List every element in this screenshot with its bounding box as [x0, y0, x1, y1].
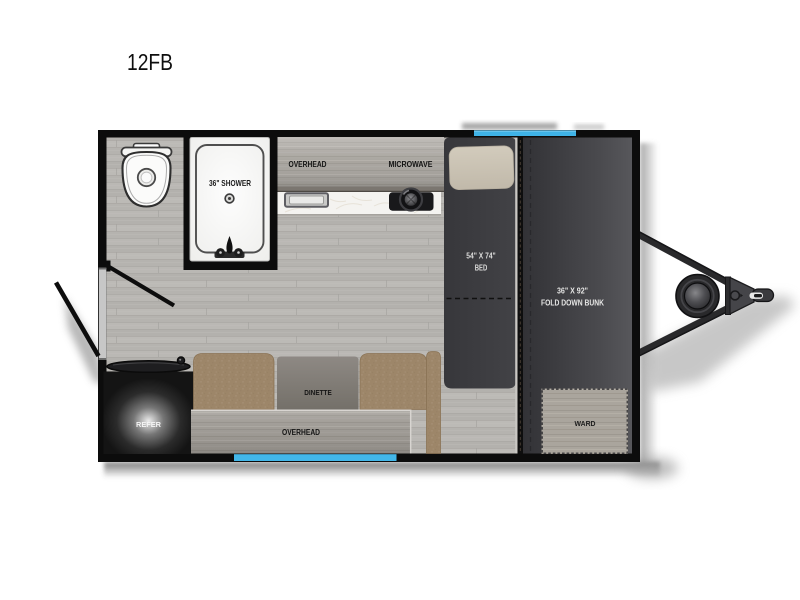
svg-text:BED: BED — [475, 264, 488, 273]
svg-text:OVERHEAD: OVERHEAD — [289, 160, 327, 169]
svg-text:36" X 92": 36" X 92" — [557, 287, 588, 296]
svg-text:MICROWAVE: MICROWAVE — [389, 160, 434, 169]
svg-text:36" SHOWER: 36" SHOWER — [209, 178, 251, 188]
svg-text:OVERHEAD: OVERHEAD — [282, 428, 320, 437]
svg-text:12FB: 12FB — [127, 49, 173, 75]
svg-text:WARD: WARD — [575, 419, 596, 428]
svg-text:REFER: REFER — [136, 420, 161, 429]
svg-text:FOLD DOWN BUNK: FOLD DOWN BUNK — [541, 299, 604, 308]
svg-text:DINETTE: DINETTE — [304, 388, 332, 397]
svg-text:54" X 74": 54" X 74" — [466, 252, 496, 261]
